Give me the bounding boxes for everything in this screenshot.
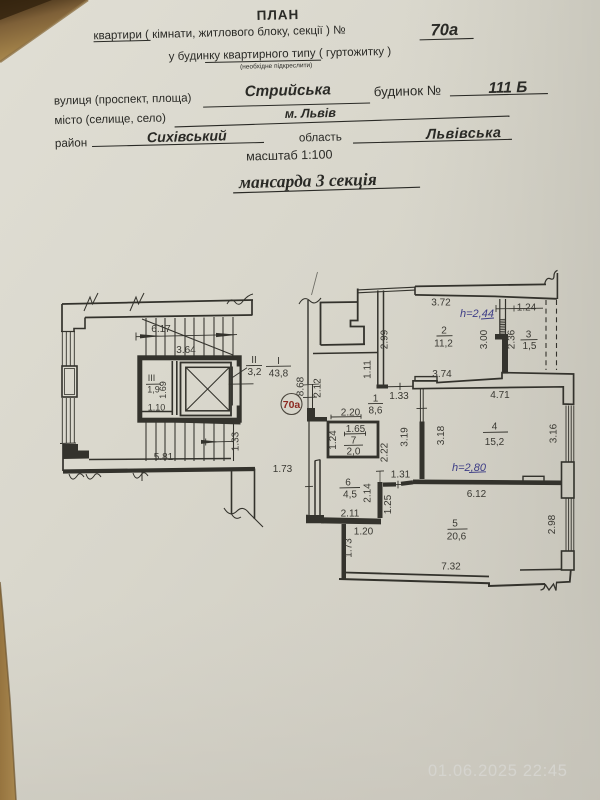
svg-text:20,6: 20,6 bbox=[447, 532, 467, 543]
svg-text:3.18: 3.18 bbox=[436, 425, 447, 445]
svg-text:1.33: 1.33 bbox=[389, 391, 409, 402]
svg-text:111 Б: 111 Б bbox=[488, 79, 527, 97]
svg-text:7.32: 7.32 bbox=[441, 562, 461, 573]
svg-text:2.98: 2.98 bbox=[547, 514, 558, 534]
svg-text:1.10: 1.10 bbox=[148, 403, 166, 413]
svg-text:70а: 70а bbox=[283, 399, 301, 411]
svg-text:5: 5 bbox=[452, 519, 458, 530]
svg-text:6: 6 bbox=[345, 478, 351, 489]
svg-text:I: I bbox=[277, 356, 280, 367]
svg-text:2.36: 2.36 bbox=[507, 329, 518, 349]
svg-text:4.71: 4.71 bbox=[490, 390, 510, 401]
svg-text:2.14: 2.14 bbox=[363, 483, 374, 503]
svg-text:2: 2 bbox=[441, 326, 447, 337]
svg-text:70а: 70а bbox=[430, 21, 458, 40]
svg-text:8.68: 8.68 bbox=[296, 376, 307, 396]
svg-text:1.31: 1.31 bbox=[391, 470, 411, 481]
svg-text:масштаб 1:100: масштаб 1:100 bbox=[246, 147, 333, 163]
svg-text:1.25: 1.25 bbox=[383, 494, 394, 514]
svg-text:III: III bbox=[148, 373, 156, 383]
svg-text:11,2: 11,2 bbox=[434, 339, 453, 350]
svg-text:Стрийська: Стрийська bbox=[245, 81, 331, 100]
svg-text:1.11: 1.11 bbox=[363, 360, 374, 379]
svg-text:будинок №: будинок № bbox=[374, 83, 442, 100]
svg-text:2.22: 2.22 bbox=[380, 442, 391, 462]
svg-text:м. Львів: м. Львів bbox=[285, 106, 337, 121]
svg-text:1.20: 1.20 bbox=[354, 527, 374, 538]
svg-text:3.19: 3.19 bbox=[400, 427, 411, 447]
svg-text:2.99: 2.99 bbox=[380, 329, 391, 349]
svg-text:5.81: 5.81 bbox=[154, 452, 174, 463]
svg-text:3.00: 3.00 bbox=[479, 329, 490, 349]
svg-text:3.16: 3.16 bbox=[549, 423, 560, 443]
svg-text:1: 1 bbox=[373, 394, 379, 405]
svg-text:4,5: 4,5 bbox=[343, 490, 357, 501]
svg-text:1.24: 1.24 bbox=[328, 430, 339, 450]
svg-text:район: район bbox=[55, 136, 88, 150]
svg-text:3.72: 3.72 bbox=[431, 298, 451, 309]
svg-text:2.11: 2.11 bbox=[341, 509, 360, 520]
svg-text:місто (селище, село): місто (селище, село) bbox=[54, 111, 166, 127]
svg-text:3,2: 3,2 bbox=[248, 367, 262, 378]
svg-text:Львівська: Львівська bbox=[425, 125, 501, 143]
svg-text:15,2: 15,2 bbox=[485, 437, 505, 448]
svg-text:1.33: 1.33 bbox=[231, 431, 242, 451]
svg-text:1.24: 1.24 bbox=[517, 303, 537, 314]
svg-text:область: область bbox=[299, 131, 342, 145]
svg-text:6.17: 6.17 bbox=[151, 324, 171, 335]
svg-text:1.73: 1.73 bbox=[344, 538, 355, 558]
svg-text:2.12: 2.12 bbox=[313, 378, 324, 398]
svg-text:Сихівський: Сихівський bbox=[147, 128, 227, 146]
svg-text:2,0: 2,0 bbox=[347, 447, 361, 458]
svg-text:3.64: 3.64 bbox=[176, 345, 196, 356]
svg-text:8,6: 8,6 bbox=[369, 406, 383, 417]
svg-text:43,8: 43,8 bbox=[269, 369, 289, 380]
svg-text:II: II bbox=[251, 355, 257, 366]
svg-text:3.74: 3.74 bbox=[432, 369, 452, 380]
svg-text:6.12: 6.12 bbox=[467, 489, 487, 500]
svg-text:1.73: 1.73 bbox=[273, 464, 293, 475]
svg-text:01.06.2025 22:45: 01.06.2025 22:45 bbox=[428, 762, 568, 780]
svg-text:ПЛАН: ПЛАН bbox=[256, 7, 299, 23]
svg-text:1,5: 1,5 bbox=[523, 341, 537, 352]
svg-text:4: 4 bbox=[492, 422, 498, 433]
svg-text:3: 3 bbox=[526, 330, 532, 341]
